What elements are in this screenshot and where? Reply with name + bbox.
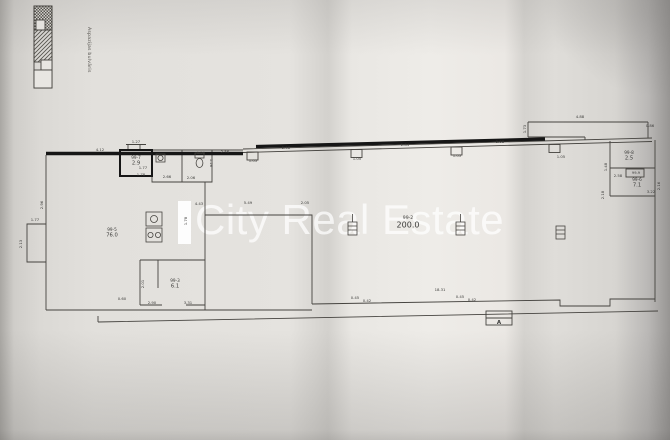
dimension-label: 2.84 bbox=[401, 142, 410, 147]
room-number-label: 99-6 bbox=[632, 177, 642, 182]
dimension-label: 3.31 bbox=[184, 300, 193, 305]
dimension-label: 2.90 bbox=[148, 300, 157, 305]
dimension-label: 0.45 bbox=[351, 295, 360, 300]
dimension-label: 2.16 bbox=[656, 181, 661, 190]
dimension-label: 1.05 bbox=[453, 153, 462, 158]
dimension-label: 2.06 bbox=[187, 175, 196, 180]
dimension-label: 0.42 bbox=[363, 298, 372, 303]
dimension-label: 1.78 bbox=[183, 216, 188, 225]
radiator-icon bbox=[348, 214, 357, 235]
dimension-label: 5.49 bbox=[244, 200, 253, 205]
dimension-label: 18.31 bbox=[435, 287, 446, 292]
dimension-label: 4.12 bbox=[96, 147, 105, 152]
dimension-label: 0.42 bbox=[468, 297, 477, 302]
room-area-label: 7.1 bbox=[633, 183, 641, 189]
radiator-icon bbox=[456, 214, 465, 235]
dimension-label: 1.26 bbox=[209, 159, 214, 168]
dimension-label: 2.66 bbox=[163, 174, 172, 179]
dimension-label: 2.56 bbox=[221, 149, 230, 154]
room-area-label: 2.9 bbox=[132, 161, 140, 167]
dimension-label: 0.45 bbox=[456, 294, 465, 299]
dimension-label: 1.48 bbox=[603, 162, 608, 171]
dimension-label: 2.05 bbox=[301, 200, 310, 205]
dimension-label: 2.96 bbox=[39, 200, 44, 209]
room-number-label: 99-3 bbox=[170, 278, 180, 283]
heavy-walls-layer bbox=[46, 139, 545, 176]
dimension-label: 2.01 bbox=[140, 279, 145, 288]
room-number-label: 99-5 bbox=[107, 227, 117, 232]
radiator-icon bbox=[556, 226, 565, 239]
dimension-label: 2.58 bbox=[614, 173, 623, 178]
dimension-label: 3.22 bbox=[647, 189, 656, 194]
dimension-label: 4.88 bbox=[576, 114, 585, 119]
dimension-label: 1.29 bbox=[197, 150, 206, 155]
section-marker-letter: A bbox=[497, 320, 502, 326]
dimension-label: 2.98 bbox=[496, 139, 505, 144]
room-number-label: 99-8 bbox=[624, 150, 634, 155]
dimension-label: 1.27 bbox=[132, 139, 141, 144]
dimension-label: 1.05 bbox=[249, 158, 258, 163]
stove-icon bbox=[146, 228, 162, 242]
floorplan-drawing: 4.121.271.771.782.662.061.291.262.961.77… bbox=[0, 0, 670, 440]
dimension-label: 4.43 bbox=[195, 201, 204, 206]
dimension-label: 1.05 bbox=[353, 156, 362, 161]
dimension-label: 2.18 bbox=[600, 190, 605, 199]
boxed-room-number: 99-9 bbox=[632, 171, 641, 175]
room-area-label: 6.1 bbox=[171, 284, 179, 290]
dimension-label: 1.78 bbox=[137, 172, 146, 177]
room-area-label: 200.0 bbox=[397, 221, 420, 230]
fixtures-layer bbox=[146, 153, 565, 242]
room-area-label: 76.0 bbox=[106, 233, 118, 239]
floorplan-photo: Aspazijas bulvāris City Real Estate bbox=[0, 0, 670, 440]
room-number-label: 99-7 bbox=[131, 155, 141, 160]
room-area-label: 2.5 bbox=[625, 156, 633, 162]
dimension-label: 2.13 bbox=[18, 239, 23, 248]
kitchen-sink-icon bbox=[146, 212, 162, 226]
dimension-label: 1.73 bbox=[522, 124, 527, 133]
dimension-label: 0.60 bbox=[118, 296, 127, 301]
dimension-label: 2.98 bbox=[282, 145, 291, 150]
site-key-symbol bbox=[34, 6, 52, 88]
dimension-label: 1.05 bbox=[557, 154, 566, 159]
dimension-label: 1.77 bbox=[31, 217, 40, 222]
dimension-label: 0.86 bbox=[646, 123, 655, 128]
